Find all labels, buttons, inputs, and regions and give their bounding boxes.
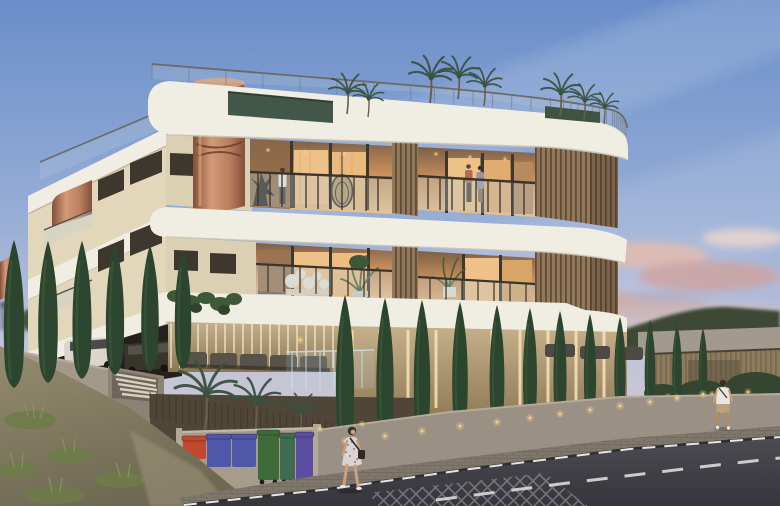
- architectural-render: [0, 0, 780, 506]
- balcony-balustrade: [250, 172, 392, 212]
- balcony-balustrade: [418, 176, 535, 216]
- balcony-upper-right: [418, 147, 535, 217]
- balcony-lower-centre: [256, 243, 392, 300]
- balcony-upper-centre: [250, 139, 392, 214]
- terrace-glass-fence: [286, 350, 374, 392]
